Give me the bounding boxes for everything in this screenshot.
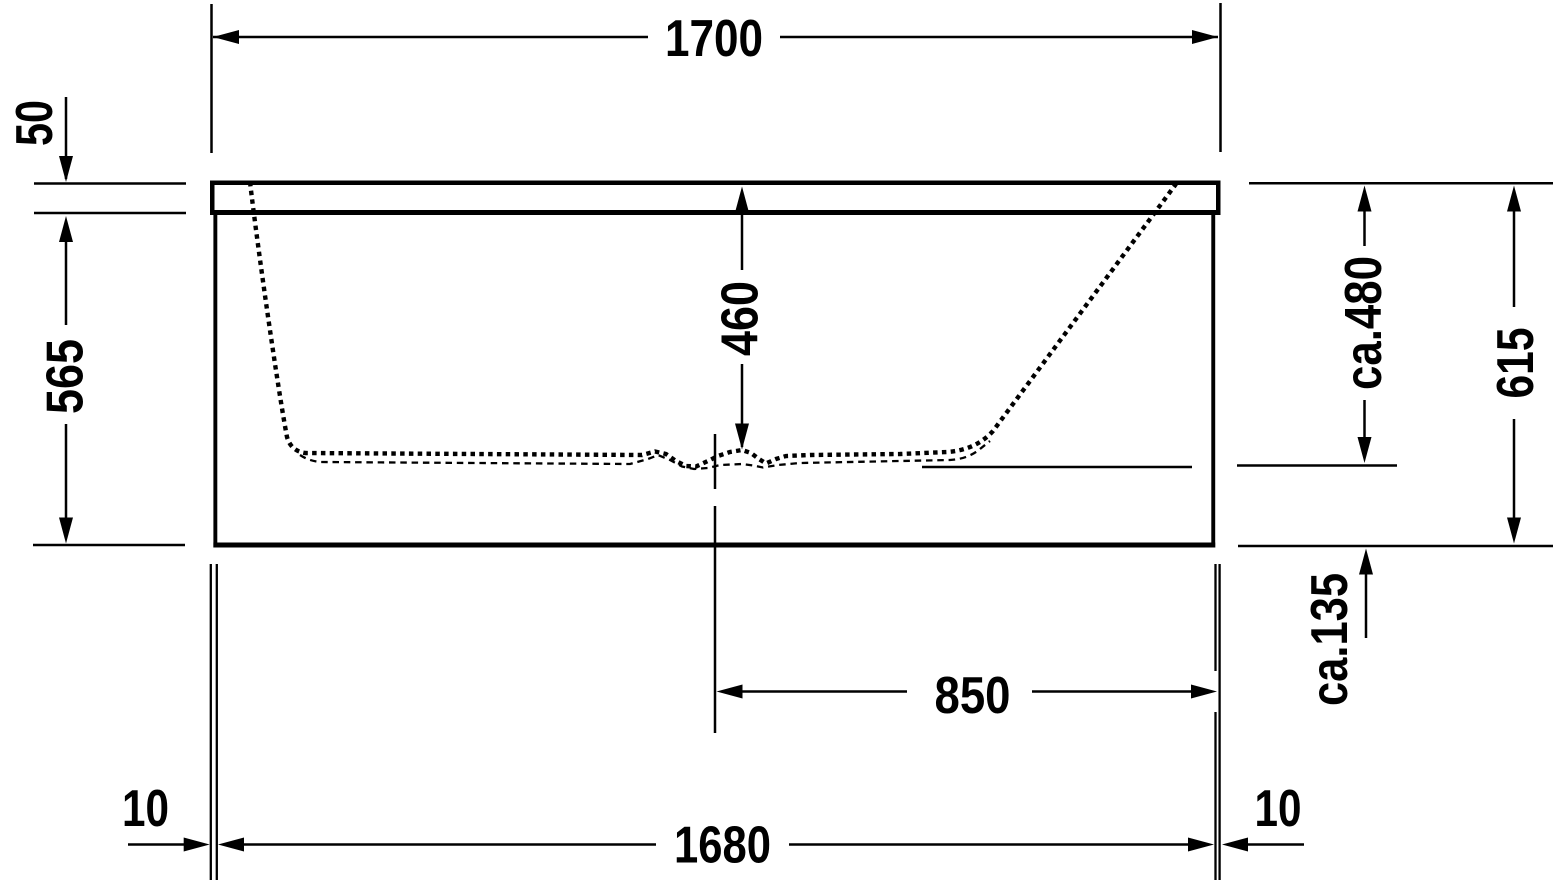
svg-text:ca.135: ca.135 bbox=[1301, 573, 1359, 706]
svg-text:1700: 1700 bbox=[665, 10, 763, 68]
svg-text:50: 50 bbox=[6, 100, 64, 146]
svg-text:850: 850 bbox=[935, 667, 1011, 725]
svg-text:1680: 1680 bbox=[674, 817, 771, 875]
svg-text:460: 460 bbox=[712, 281, 770, 356]
svg-text:ca.480: ca.480 bbox=[1335, 256, 1393, 390]
svg-text:565: 565 bbox=[37, 339, 95, 414]
svg-text:10: 10 bbox=[122, 780, 169, 838]
svg-text:615: 615 bbox=[1487, 328, 1545, 399]
svg-text:10: 10 bbox=[1255, 780, 1302, 838]
